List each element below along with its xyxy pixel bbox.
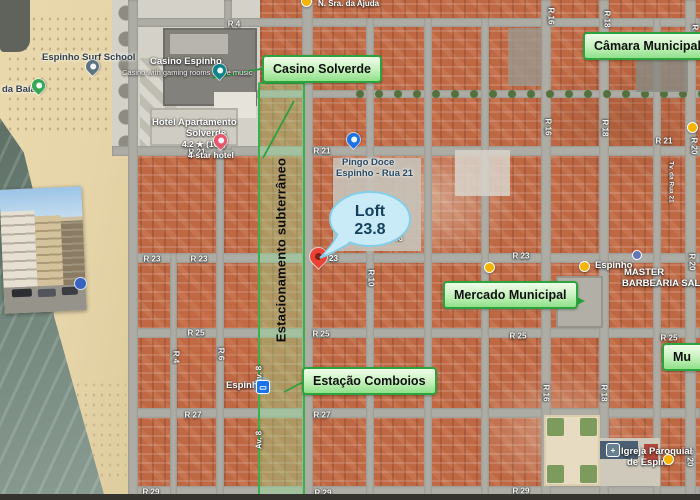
street-label: R 25 [188,329,205,338]
poi-pingo-doce-line1[interactable]: Pingo Doce [342,157,394,168]
annotation-camara-municipal: Câmara Municipal [583,32,700,60]
photo-car [38,288,56,297]
poi-casino-subtitle: Casino with gaming rooms & live music [122,68,252,77]
street-label: R 18 [603,11,612,28]
street-label: R 21 [314,147,331,156]
street-label: R 20 [690,138,699,155]
street-label: R 27 [185,411,202,420]
poi-hotel-line1[interactable]: Hotel Apartamento [152,117,237,128]
photo-car [12,289,32,298]
poi-barber-line2: BARBEARIA SALON [622,278,700,289]
poi-top-label: N. Sra. da Ajuda [318,0,379,8]
train-station-icon[interactable]: ▭ [256,380,270,394]
road-r4-v [170,253,177,500]
balloon-line1: Loft [355,203,386,220]
street-label: R 10 [367,270,376,287]
building [455,150,510,196]
street-label: R 27 [314,411,331,420]
road-r6-v [216,146,224,500]
camara-building [636,58,688,92]
street-label: R 18 [600,385,609,402]
street-label: R 23 [513,252,530,261]
photo-building [35,215,64,288]
annotation-estacao-comboios: Estação Comboios [302,367,437,395]
poi-barber-line1[interactable]: MASTER [624,267,664,278]
poi-casino-espinho[interactable]: Casino Espinho [150,56,222,67]
street-label: R 20 [688,254,697,271]
street-label: R 18 [601,120,610,137]
street-photo-inset [0,186,87,313]
poi-igreja-line1[interactable]: Igreja Paroquial [621,446,692,457]
annotation-mercado-municipal: Mercado Municipal [443,281,578,309]
transit-dot-igreja[interactable] [663,454,674,465]
street-label: R 16 [542,385,551,402]
barber-pin[interactable] [632,250,642,260]
annotation-museu-partial: Mu [662,343,700,371]
parking-strip-label: Estacionamento subterrâneo [274,130,289,370]
poi-hotel-type: 4-star hotel [188,150,234,160]
street-label: Tv. da Rua 21 [668,161,675,202]
street-label: R 25 [661,334,678,343]
road-r25 [128,328,700,338]
poi-igreja-line2: de Espin [627,457,667,468]
casino-roof-detail [170,34,228,54]
street-label: R 4 [172,351,181,363]
loft-balloon[interactable]: Loft 23.8 [312,190,412,262]
street-label: R 25 [313,330,330,339]
church-icon[interactable]: + [606,443,620,457]
photo-building [0,210,37,289]
street-label: R 21 [656,137,673,146]
annotation-casino-solverde: Casino Solverde [262,55,382,83]
plaza [544,415,600,486]
street-label: R 25 [510,332,527,341]
street-label: R 16 [547,8,556,25]
street-label: Av. 8 [255,431,264,449]
poi-pingo-doce-line2: Espinho - Rua 21 [336,168,413,179]
building [508,28,542,86]
transit-dot-espinho[interactable] [579,261,590,272]
transit-dot[interactable] [484,262,495,273]
street-label: R 4 [228,20,240,29]
balloon-line2: 23.8 [354,221,385,238]
map-canvas[interactable]: Estacionamento subterrâneo R 4R 21R 21R … [0,0,700,500]
bottom-dark-strip [0,494,700,500]
rocks [0,0,30,52]
street-label: R 16 [544,119,553,136]
street-label: R 23 [191,255,208,264]
road-r27 [128,408,700,418]
street-label: R 23 [144,255,161,264]
road-r18-v [599,0,609,500]
photo-map-dot [74,277,87,290]
street-label: R 6 [217,348,226,360]
transit-dot[interactable] [687,122,698,133]
road-r4 [128,18,700,27]
